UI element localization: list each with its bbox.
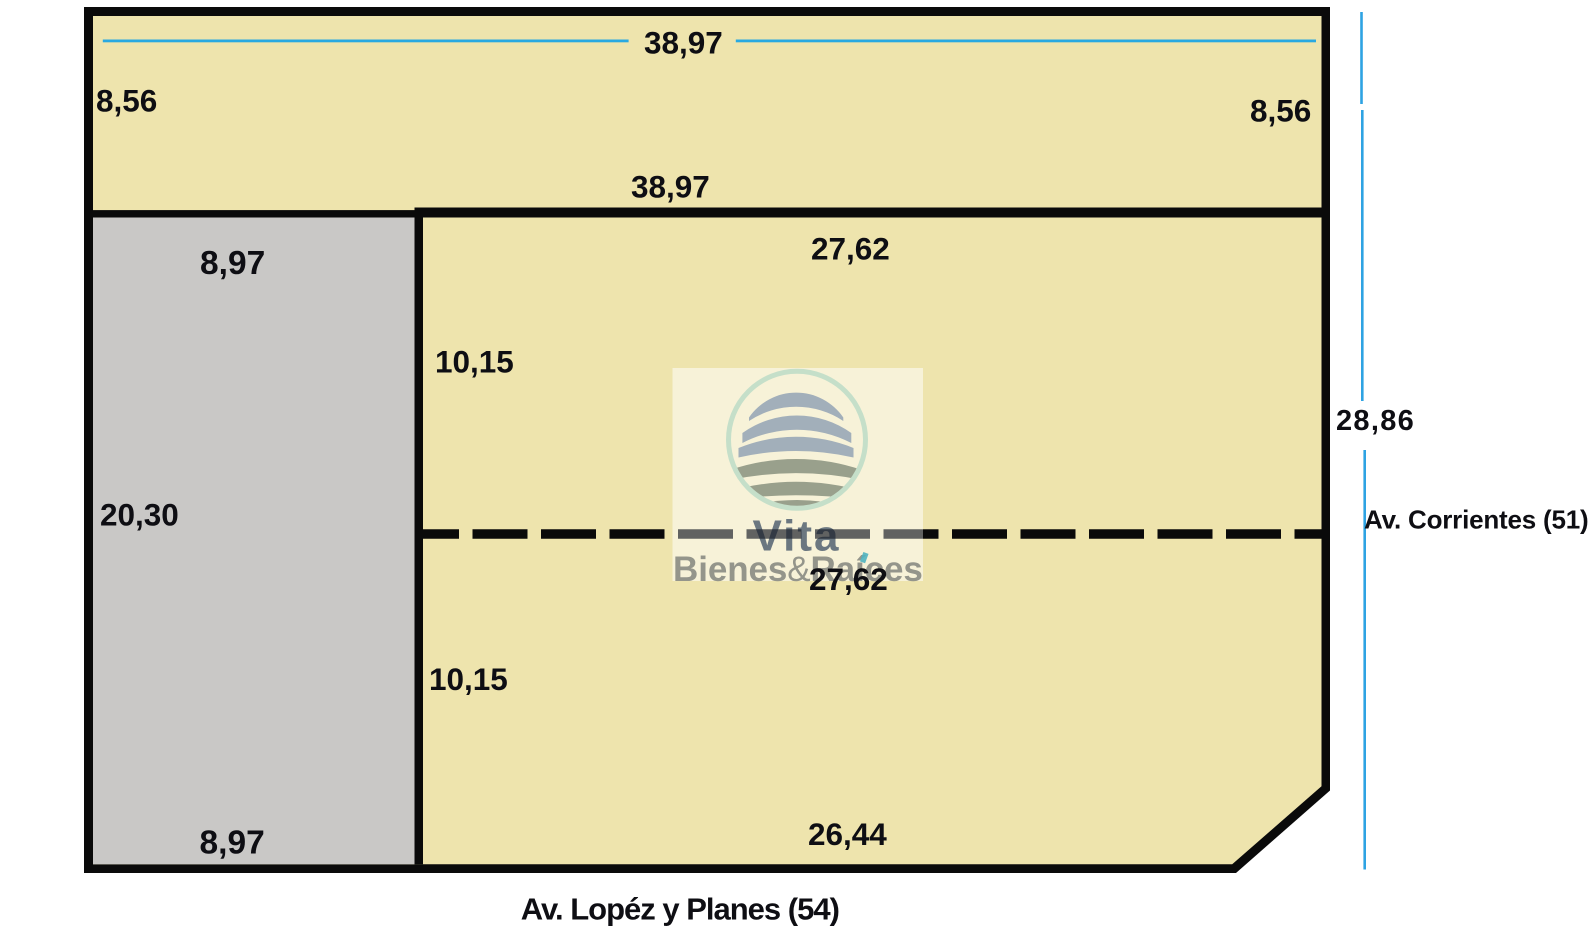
svg-text:27,62: 27,62 <box>809 561 888 597</box>
svg-text:26,44: 26,44 <box>808 816 887 852</box>
svg-text:8,97: 8,97 <box>200 825 265 862</box>
svg-text:8,56: 8,56 <box>1250 93 1311 129</box>
svg-text:8,56: 8,56 <box>96 83 157 119</box>
svg-text:10,15: 10,15 <box>435 343 514 379</box>
svg-text:27,62: 27,62 <box>811 231 890 267</box>
svg-text:28,86: 28,86 <box>1336 405 1415 437</box>
svg-text:Av. Lopéz y Planes (54): Av. Lopéz y Planes (54) <box>521 892 839 927</box>
svg-text:38,97: 38,97 <box>644 25 723 61</box>
svg-text:10,15: 10,15 <box>429 661 508 697</box>
svg-text:Av. Corrientes (51): Av. Corrientes (51) <box>1364 504 1589 534</box>
svg-text:8,97: 8,97 <box>200 245 265 282</box>
svg-text:38,97: 38,97 <box>631 169 710 205</box>
svg-text:20,30: 20,30 <box>100 497 179 533</box>
